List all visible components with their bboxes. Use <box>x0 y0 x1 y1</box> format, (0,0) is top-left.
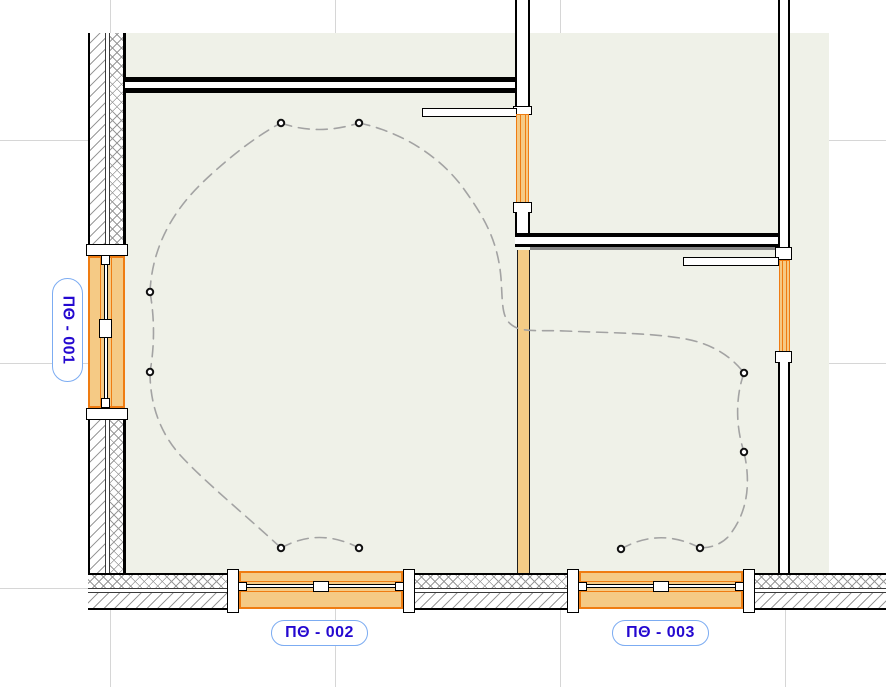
wall-structure-hatch <box>415 593 567 608</box>
beam-over-line <box>530 247 790 250</box>
window-handle <box>99 319 112 338</box>
window-tag-po-003[interactable]: ПΘ - 003 <box>612 620 709 646</box>
window-po-001[interactable] <box>86 244 128 420</box>
window-tag-po-002[interactable]: ПΘ - 002 <box>271 620 368 646</box>
door-leaf[interactable] <box>422 108 517 117</box>
window-tag-text: ПΘ - 001 <box>59 296 77 365</box>
window-jamb <box>743 569 755 613</box>
door-right[interactable] <box>779 260 790 352</box>
door-top[interactable] <box>516 114 529 203</box>
wall-outer-face <box>415 608 567 610</box>
wall-structure-hatch <box>90 33 105 244</box>
bottom-exterior-wall-right <box>755 573 886 610</box>
window-handle <box>101 255 110 265</box>
bottom-exterior-wall-middle <box>415 573 567 610</box>
door-frame-line <box>786 261 787 351</box>
door-leaf[interactable] <box>683 257 779 266</box>
wall-structure-hatch <box>88 593 227 608</box>
window-tag-text: ПΘ - 003 <box>626 624 695 642</box>
wall-inner-face <box>123 33 126 244</box>
right-interior-wall-upper <box>778 0 790 248</box>
interior-wall-top <box>125 77 516 93</box>
wall-outer-face <box>755 608 886 610</box>
wall-structure-hatch <box>755 593 886 608</box>
door-frame-line <box>520 115 521 202</box>
door-frame-line <box>782 261 783 351</box>
window-handle <box>101 398 110 408</box>
wall-insulation-hatch <box>755 575 886 588</box>
left-exterior-wall-upper <box>88 33 126 244</box>
wall-insulation-hatch <box>88 575 227 588</box>
window-jamb <box>567 569 579 613</box>
bottom-exterior-wall-left <box>88 573 227 610</box>
wall-insulation-hatch <box>415 575 567 588</box>
window-tag-text: ПΘ - 002 <box>285 624 354 642</box>
wall-insulation-hatch <box>110 33 123 244</box>
window-handle <box>653 581 669 592</box>
window-jamb <box>86 408 128 420</box>
window-handle <box>313 581 329 592</box>
window-jamb <box>403 569 415 613</box>
window-handle <box>238 582 247 591</box>
window-tag-po-001[interactable]: ПΘ - 001 <box>52 278 83 382</box>
window-handle <box>578 582 587 591</box>
floor-plan-canvas[interactable]: ПΘ - 001 ПΘ - 002 ПΘ - 003 <box>0 0 886 687</box>
partition-wall-orange[interactable] <box>517 250 530 573</box>
window-jamb <box>227 569 239 613</box>
window-po-002[interactable] <box>227 569 415 613</box>
interior-wall-right-horizontal <box>515 233 790 247</box>
interior-wall-center-upper <box>515 0 530 107</box>
wall-outer-face <box>88 608 227 610</box>
door-frame-line <box>525 115 526 202</box>
window-po-003[interactable] <box>567 569 755 613</box>
right-interior-wall-lower <box>778 362 790 573</box>
